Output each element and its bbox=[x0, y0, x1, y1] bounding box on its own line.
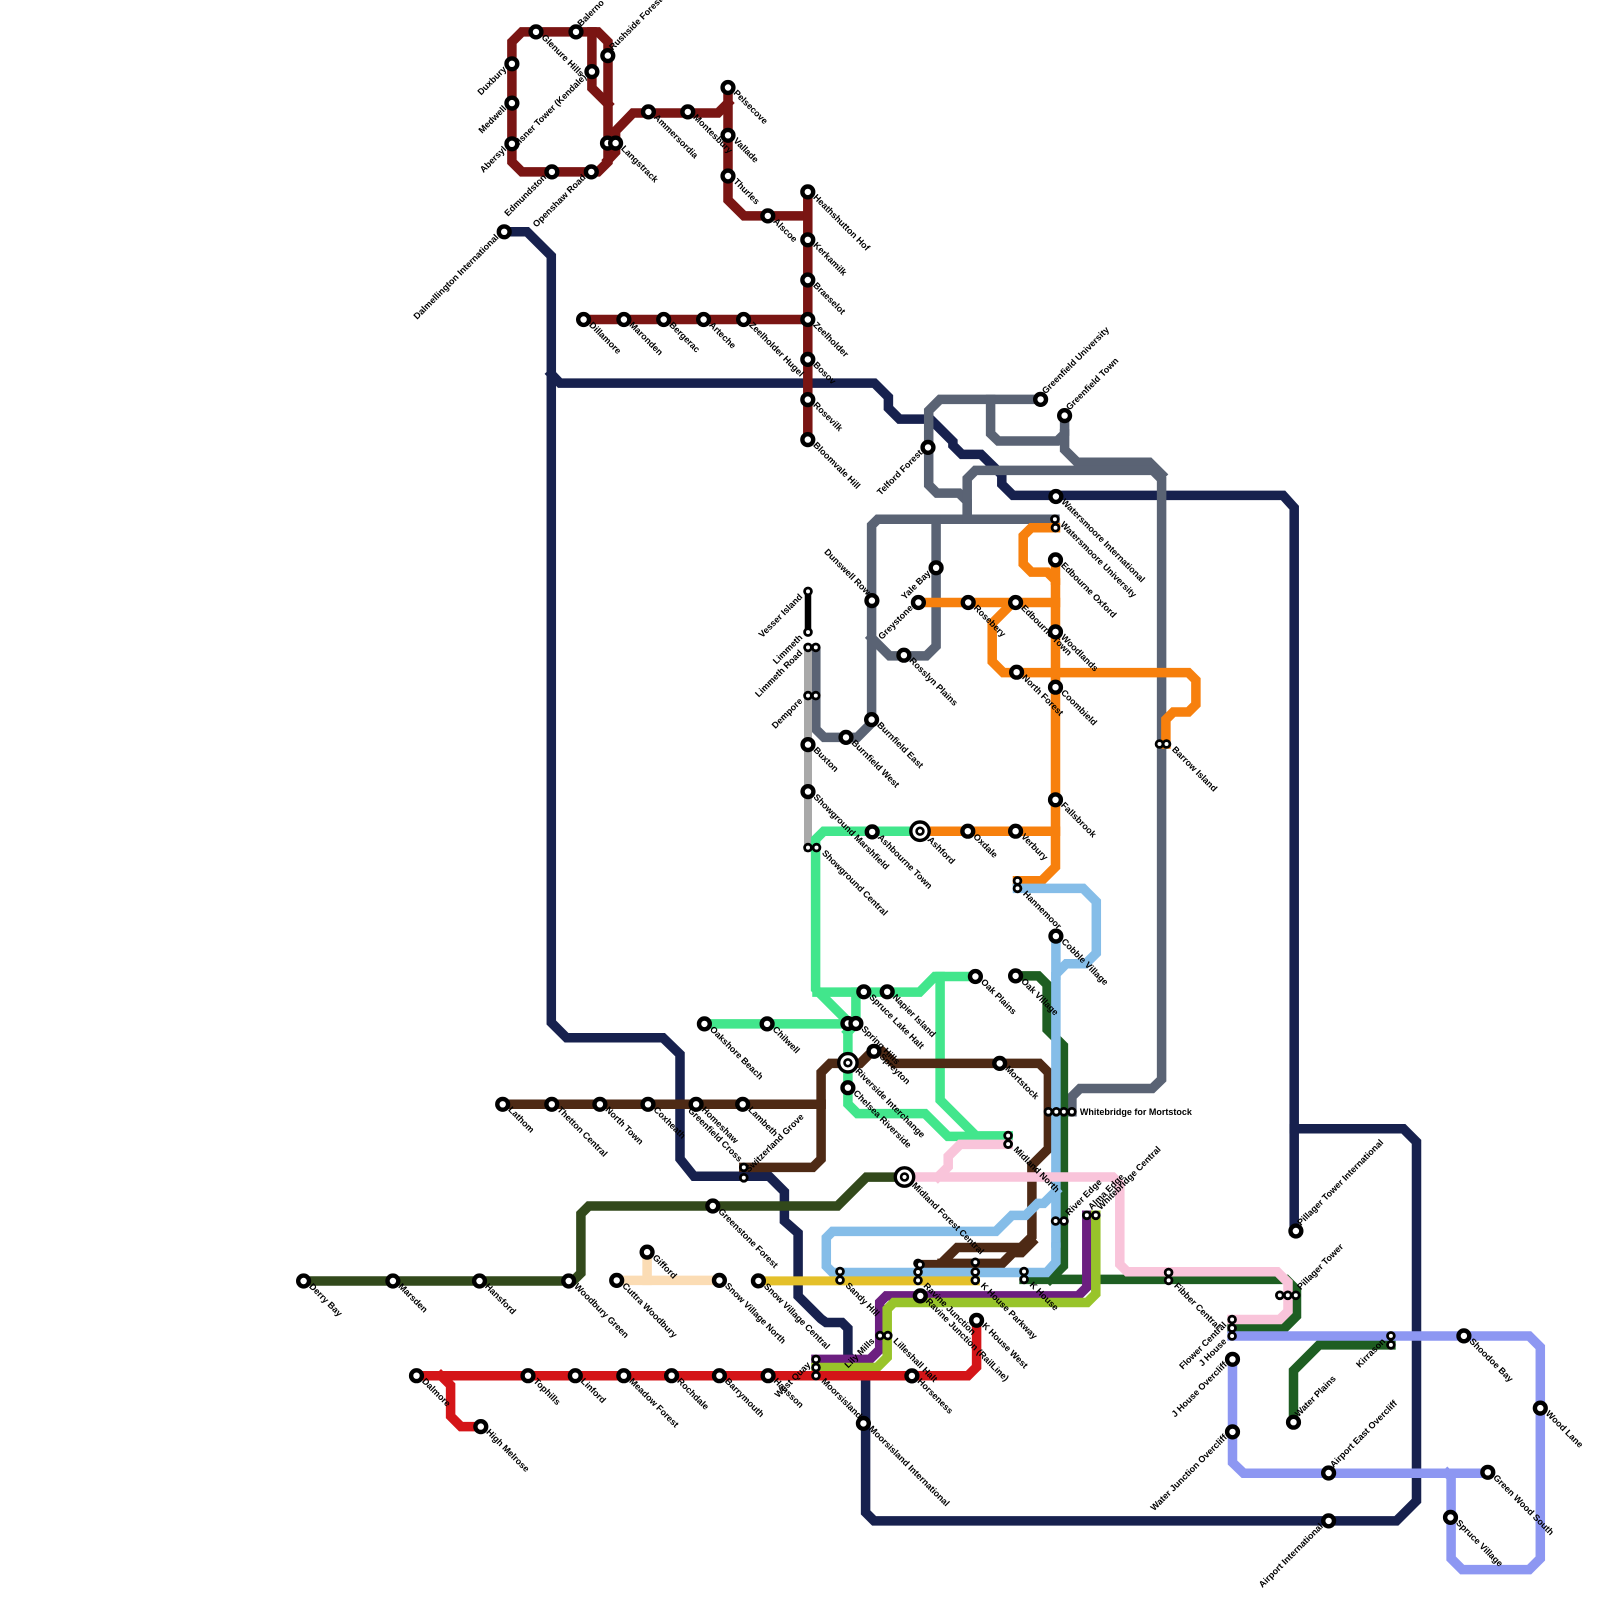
svg-text:Whitebridge for Mortstock: Whitebridge for Mortstock bbox=[1080, 1107, 1193, 1117]
